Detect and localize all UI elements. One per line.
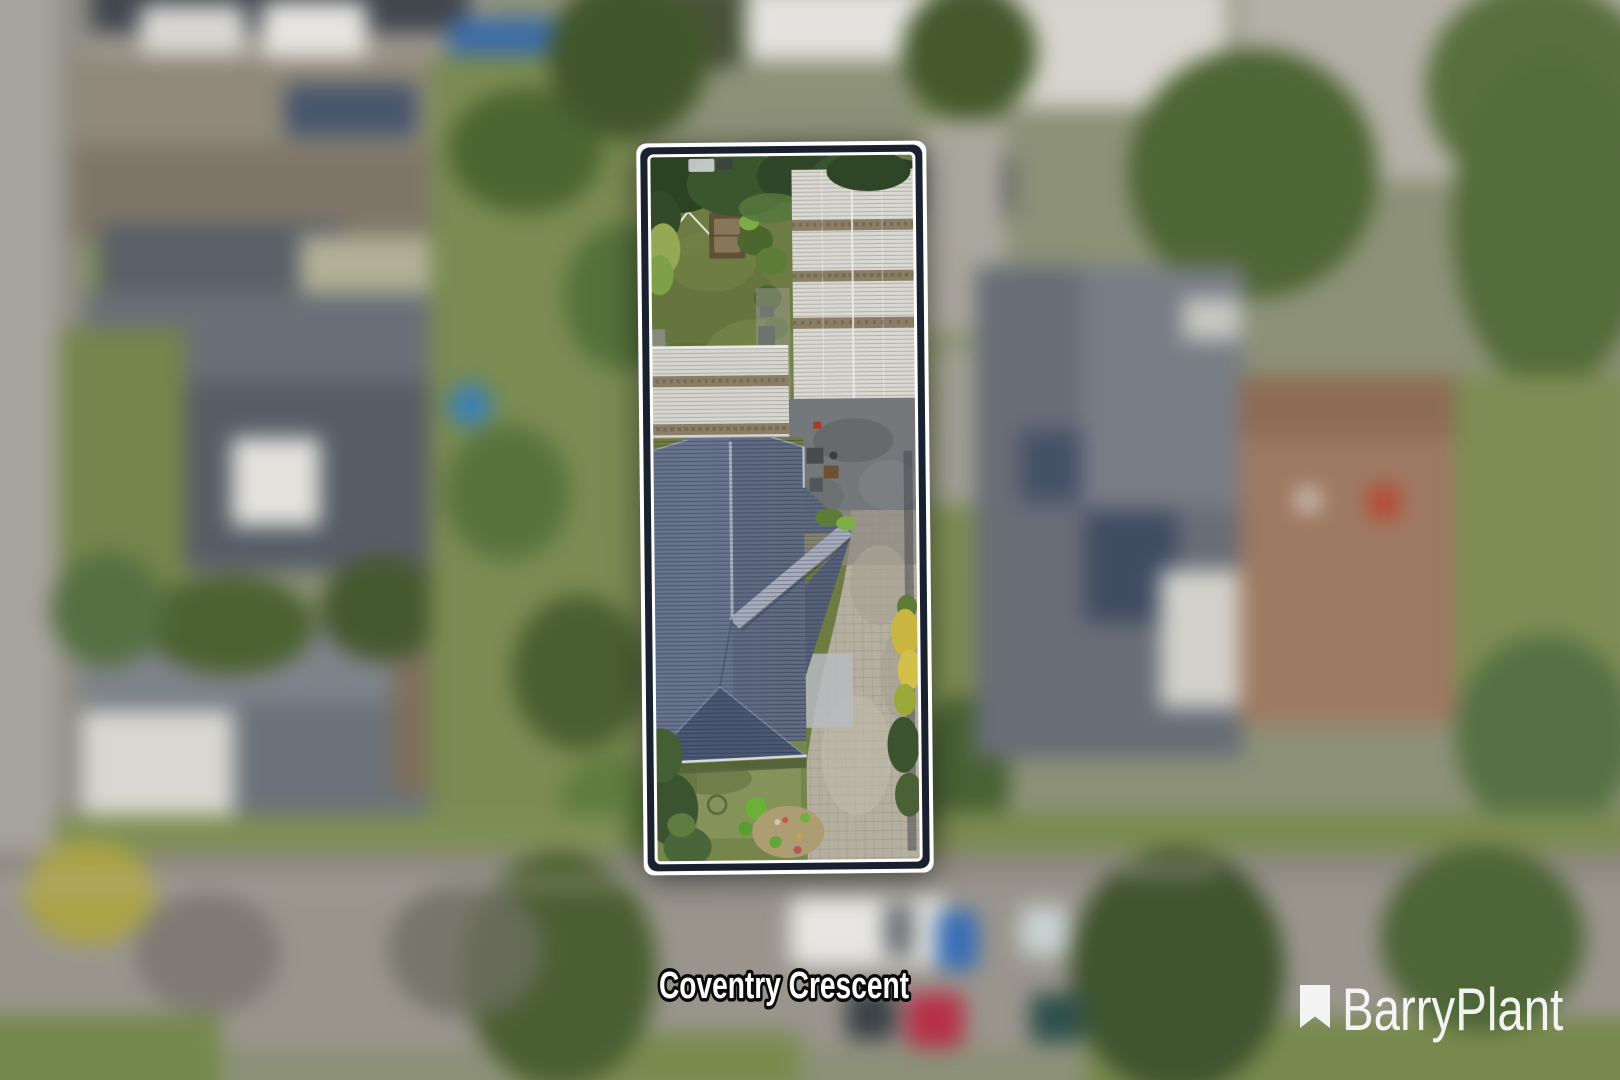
bg-blob bbox=[145, 575, 315, 675]
bg-blob bbox=[1455, 635, 1620, 835]
bg-blob bbox=[445, 425, 570, 560]
bg-blob bbox=[1296, 488, 1320, 512]
bg-blob bbox=[25, 840, 155, 945]
bookmark-icon bbox=[1300, 985, 1330, 1028]
bg-blob bbox=[0, 878, 650, 888]
bg-blob bbox=[448, 383, 492, 427]
bg-blob bbox=[0, 1015, 220, 1080]
carport bbox=[806, 653, 854, 727]
bg-blob bbox=[1070, 848, 1285, 1080]
bg-blob bbox=[140, 5, 245, 55]
bg-blob bbox=[1120, 864, 1215, 876]
bg-blob bbox=[1030, 993, 1084, 1043]
bg-blob bbox=[262, 2, 367, 60]
bg-blob bbox=[846, 990, 896, 1040]
bg-blob bbox=[232, 438, 320, 526]
parked-car-glimpse bbox=[688, 159, 714, 172]
bg-blob bbox=[1020, 906, 1068, 956]
bg-blob bbox=[135, 892, 280, 1014]
subject-lot-photo bbox=[650, 155, 919, 862]
bg-blob bbox=[936, 910, 978, 970]
bg-blob bbox=[906, 993, 964, 1047]
bg-blob bbox=[1240, 376, 1462, 438]
property-boundary bbox=[650, 155, 919, 862]
bg-blob bbox=[512, 595, 647, 750]
bg-blob bbox=[790, 896, 948, 966]
bg-blob bbox=[285, 83, 417, 137]
bg-blob bbox=[1020, 430, 1082, 502]
lot-detail bbox=[650, 155, 919, 862]
bg-blob bbox=[884, 903, 914, 957]
bg-blob bbox=[320, 556, 445, 661]
bg-blob bbox=[60, 328, 185, 590]
aerial-photo: Coventry Crescent BarryPlant bbox=[0, 0, 1620, 1080]
bg-blob bbox=[50, 552, 165, 667]
bg-blob bbox=[82, 710, 234, 824]
bg-blob bbox=[1128, 48, 1378, 298]
bg-blob bbox=[1183, 298, 1241, 340]
brand-watermark: BarryPlant bbox=[1300, 980, 1620, 1040]
bg-blob bbox=[388, 882, 543, 1017]
bg-blob bbox=[1370, 486, 1398, 518]
brand-name: BarryPlant bbox=[1342, 980, 1563, 1040]
